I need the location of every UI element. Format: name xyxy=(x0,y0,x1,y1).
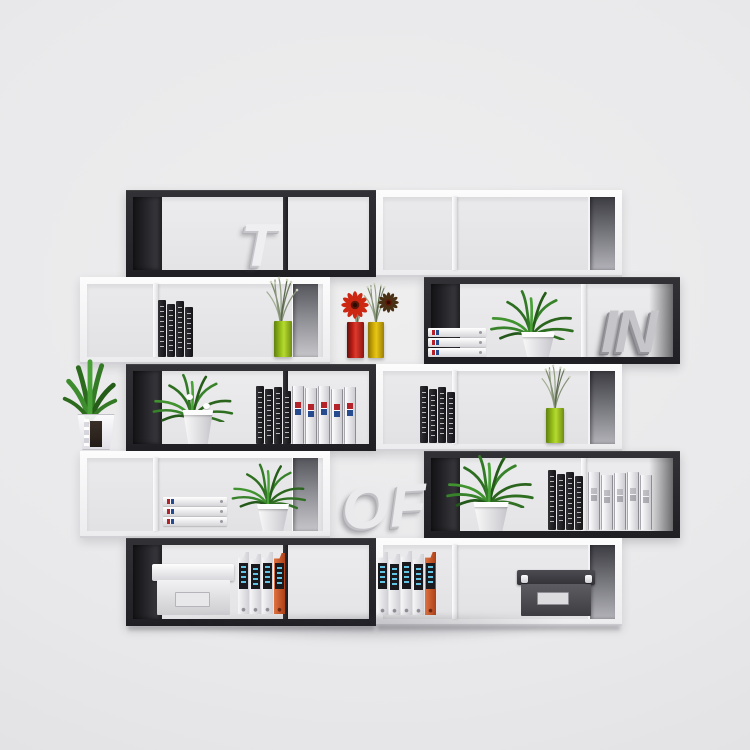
gerbera-flower-dark xyxy=(378,292,399,313)
aloe-plant xyxy=(56,356,124,424)
tier3-right-end-panel xyxy=(590,371,615,444)
black-books-tier3-left xyxy=(256,386,291,444)
black-books-tier2 xyxy=(158,300,193,357)
grass-stems xyxy=(530,364,580,412)
white-bloom xyxy=(203,403,210,409)
binder xyxy=(305,388,317,444)
lever-arch-file xyxy=(238,552,249,614)
tier3-right-white-frame xyxy=(376,364,622,451)
vase-ridges xyxy=(84,419,89,446)
binder xyxy=(292,386,304,444)
stacked-binders-tier4 xyxy=(163,497,227,526)
book xyxy=(557,474,565,530)
lever-arch-files-tier5-right xyxy=(377,551,436,615)
white-bloom xyxy=(186,394,193,400)
book xyxy=(185,307,193,357)
book xyxy=(274,387,282,444)
binder xyxy=(428,328,486,337)
decor-letter-t: T xyxy=(241,216,278,276)
document-binders-tier4 xyxy=(588,472,652,530)
book xyxy=(438,387,446,443)
white-box-label xyxy=(175,592,210,607)
green-vase xyxy=(274,321,292,357)
book xyxy=(256,386,264,444)
lever-arch-file xyxy=(401,551,412,615)
tier1-right-divider xyxy=(452,197,457,270)
binder xyxy=(428,348,486,357)
decor-letters-in: IN xyxy=(601,302,655,362)
potted-plant-leaves xyxy=(442,450,536,508)
book xyxy=(167,304,175,357)
tier3-right-cavity xyxy=(383,371,615,444)
book xyxy=(566,472,574,530)
product-photo-bookshelf: T IN xyxy=(0,0,750,750)
black-books-tier3-right xyxy=(420,386,455,443)
floor-shadow xyxy=(110,616,640,650)
box-corner-clip xyxy=(521,575,528,583)
book xyxy=(420,386,428,443)
book xyxy=(265,389,273,444)
book xyxy=(575,476,583,530)
binder xyxy=(588,472,600,530)
lever-arch-file xyxy=(413,554,424,615)
tier1-right-white-frame xyxy=(376,190,622,277)
dark-box-label xyxy=(537,592,569,605)
binder xyxy=(163,507,227,516)
lever-arch-file xyxy=(389,554,400,615)
lever-arch-file-orange xyxy=(274,553,285,614)
tier2-right-divider xyxy=(581,284,586,357)
binder xyxy=(601,475,613,530)
yellow-vase xyxy=(368,322,384,358)
binder xyxy=(331,389,343,444)
tier1-left-end-panel xyxy=(133,197,162,270)
vase-soil xyxy=(90,421,102,447)
binder xyxy=(614,473,626,530)
binder xyxy=(640,475,652,530)
lever-arch-file-orange xyxy=(425,552,436,615)
binder xyxy=(163,497,227,506)
binder xyxy=(428,338,486,347)
green-vase xyxy=(546,408,564,443)
book xyxy=(548,470,556,530)
tier1-right-end-panel xyxy=(590,197,615,270)
book xyxy=(447,392,455,443)
tier4-left-divider xyxy=(153,458,158,531)
lever-arch-file xyxy=(377,552,388,615)
lever-arch-files-tier5-left xyxy=(238,552,285,614)
binder xyxy=(627,472,639,530)
book xyxy=(158,300,166,357)
book xyxy=(176,301,184,357)
white-box-lid xyxy=(152,564,234,581)
red-vase xyxy=(347,322,364,358)
document-binders-tier3 xyxy=(292,386,356,444)
dark-box-lid xyxy=(517,570,595,585)
binder xyxy=(344,387,356,444)
stacked-binders-tier2 xyxy=(428,328,486,357)
box-corner-clip xyxy=(585,575,592,583)
glass-vase xyxy=(76,414,116,450)
binder xyxy=(318,386,330,444)
tier1-left-divider xyxy=(283,197,288,270)
tier1-right-cavity xyxy=(383,197,615,270)
potted-plant-leaves xyxy=(228,458,308,510)
tier4-right-inner-shadow xyxy=(649,458,673,531)
book xyxy=(429,389,437,443)
book xyxy=(283,391,291,444)
black-books-tier4 xyxy=(548,470,583,530)
tier5-right-divider xyxy=(452,545,457,619)
lever-arch-file xyxy=(262,552,273,614)
lever-arch-file xyxy=(250,554,261,614)
binder xyxy=(163,517,227,526)
potted-plant-leaves xyxy=(486,286,576,340)
decor-letters-of: OF xyxy=(340,475,428,539)
